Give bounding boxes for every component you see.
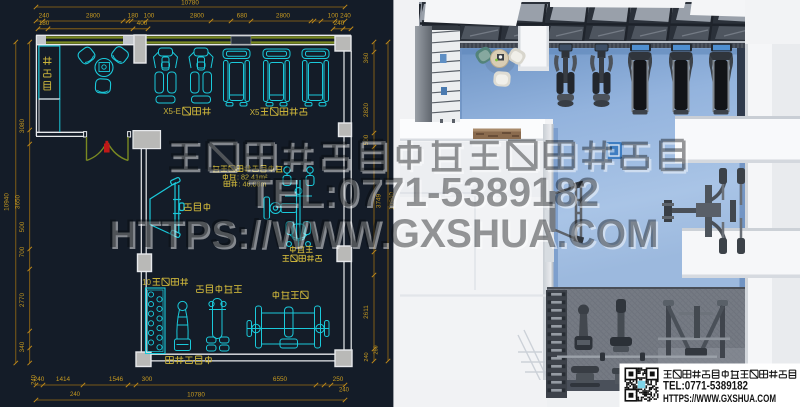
svg-text:HTTPS://WWW.GXSHUA.COM: HTTPS://WWW.GXSHUA.COM [108, 212, 659, 256]
svg-text:TEL:0771-5389182: TEL:0771-5389182 [246, 169, 599, 215]
